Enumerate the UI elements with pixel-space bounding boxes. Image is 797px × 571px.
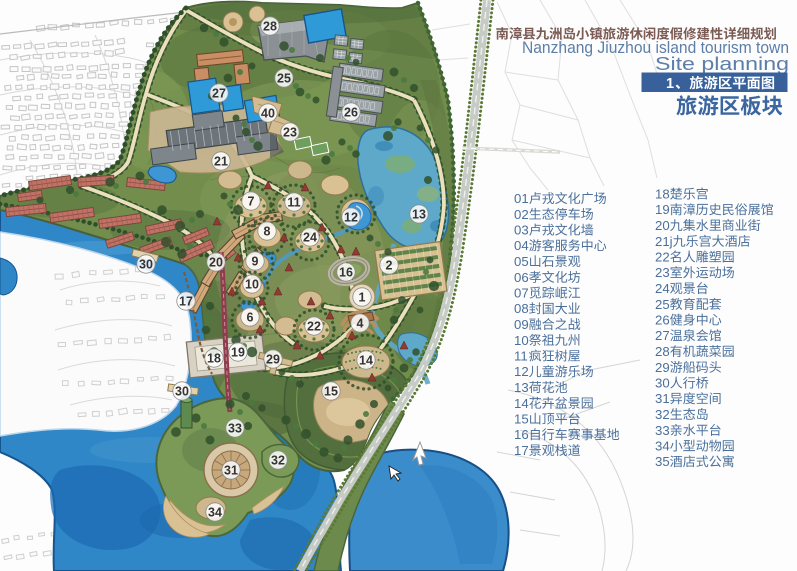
svg-text:07: 07: [514, 286, 529, 301]
svg-text:28: 28: [263, 19, 277, 33]
svg-text:05: 05: [514, 254, 529, 269]
svg-text:20: 20: [655, 218, 670, 233]
svg-text:22: 22: [307, 319, 321, 333]
svg-text:7: 7: [248, 194, 255, 208]
svg-text:13: 13: [514, 380, 529, 395]
svg-text:08: 08: [514, 301, 529, 316]
svg-text:02: 02: [514, 207, 529, 222]
svg-text:29: 29: [655, 360, 670, 375]
svg-text:40: 40: [261, 106, 275, 120]
svg-text:11: 11: [287, 195, 300, 209]
svg-text:10: 10: [514, 333, 529, 348]
svg-text:23: 23: [655, 265, 670, 280]
svg-text:16: 16: [514, 427, 529, 442]
svg-text:23: 23: [283, 125, 297, 139]
svg-text:24: 24: [655, 281, 670, 296]
svg-text:30: 30: [175, 384, 189, 398]
svg-text:6: 6: [247, 310, 254, 324]
svg-text:10: 10: [245, 277, 259, 291]
svg-text:31: 31: [655, 391, 670, 406]
svg-text:1: 1: [666, 76, 674, 92]
svg-text:26: 26: [344, 105, 358, 119]
svg-text:12: 12: [344, 210, 358, 224]
svg-text:09: 09: [514, 317, 529, 332]
svg-text:26: 26: [655, 313, 670, 328]
svg-text:32: 32: [271, 453, 285, 467]
svg-text:13: 13: [412, 207, 426, 221]
svg-text:15: 15: [324, 384, 338, 398]
svg-text:32: 32: [655, 407, 670, 422]
svg-text:18: 18: [655, 187, 670, 202]
svg-text:19: 19: [231, 345, 245, 359]
svg-text:03: 03: [514, 223, 529, 238]
svg-text:28: 28: [655, 344, 670, 359]
svg-text:27: 27: [212, 86, 226, 100]
svg-text:01: 01: [514, 191, 529, 206]
svg-text:22: 22: [655, 250, 670, 265]
svg-text:06: 06: [514, 270, 529, 285]
svg-text:17: 17: [514, 443, 529, 458]
svg-text:19: 19: [655, 202, 670, 217]
svg-text:33: 33: [228, 421, 242, 435]
svg-text:21j: 21j: [655, 234, 673, 249]
svg-text:12: 12: [514, 364, 529, 379]
svg-text:9: 9: [252, 254, 259, 268]
svg-text:31: 31: [224, 463, 238, 477]
svg-text:1: 1: [359, 290, 366, 304]
svg-text:15: 15: [514, 412, 529, 427]
svg-text:29: 29: [266, 352, 280, 366]
svg-text:2: 2: [386, 258, 393, 272]
svg-text:30: 30: [139, 257, 153, 271]
svg-text:35: 35: [655, 454, 670, 469]
svg-text:4: 4: [357, 316, 364, 330]
svg-text:16: 16: [339, 265, 353, 279]
svg-text:17: 17: [179, 294, 193, 308]
svg-text:14: 14: [359, 353, 373, 367]
svg-text:18: 18: [207, 351, 221, 365]
svg-text:34: 34: [208, 505, 222, 519]
svg-text:34: 34: [655, 439, 670, 454]
svg-text:25: 25: [277, 71, 291, 85]
svg-text:27: 27: [655, 328, 670, 343]
svg-text:8: 8: [264, 224, 271, 238]
svg-text:25: 25: [655, 297, 670, 312]
svg-text:24: 24: [303, 230, 317, 244]
svg-text:14: 14: [514, 396, 529, 411]
svg-text:30: 30: [655, 376, 670, 391]
svg-text:20: 20: [209, 255, 223, 269]
svg-text:11: 11: [514, 349, 528, 364]
svg-text:04: 04: [514, 238, 529, 253]
svg-text:Site planning: Site planning: [655, 53, 789, 74]
svg-text:33: 33: [655, 423, 670, 438]
svg-text:21: 21: [214, 154, 228, 168]
